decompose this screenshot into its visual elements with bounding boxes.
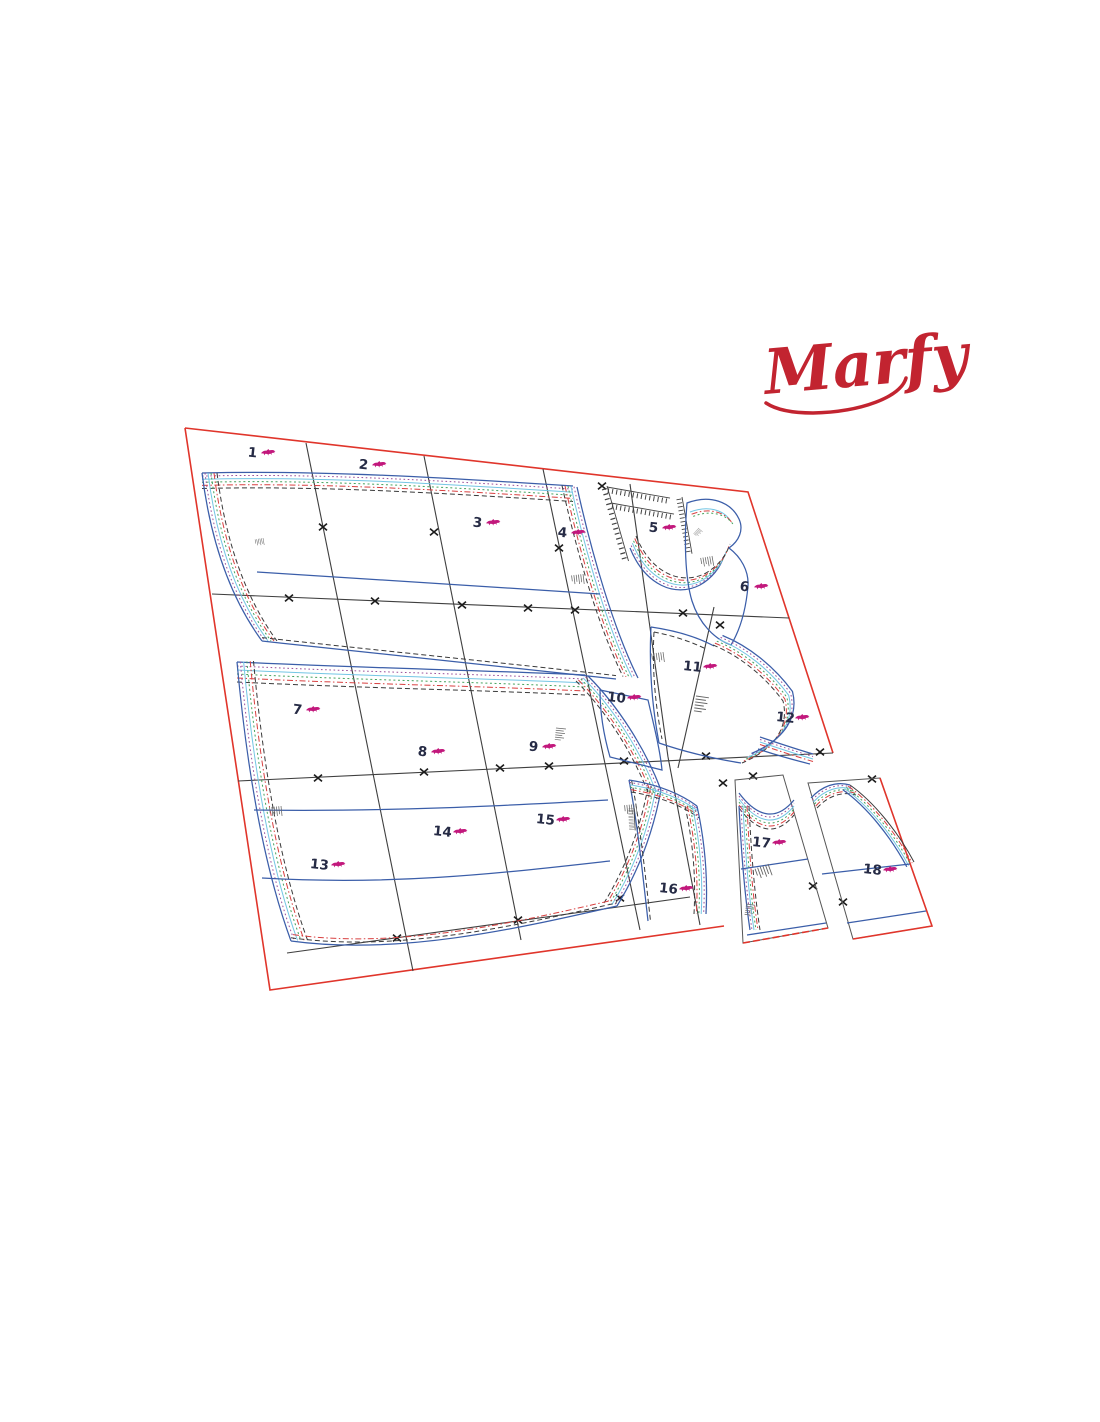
piece-number-10: 10 xyxy=(606,689,626,707)
marfy-logo: Marfy xyxy=(759,318,975,413)
piece-number-17: 17 xyxy=(751,834,771,852)
marfy-horse-icon xyxy=(331,861,345,868)
piece-number-15: 15 xyxy=(535,811,555,829)
instruction-micro-text xyxy=(255,528,772,916)
piece-number-14: 14 xyxy=(432,823,452,841)
marfy-horse-icon xyxy=(372,461,386,468)
marfy-horse-icon xyxy=(679,885,693,892)
pattern-panel-18 xyxy=(808,778,932,939)
piece-number-11: 11 xyxy=(682,658,702,676)
pattern-panel-17 xyxy=(735,775,828,943)
marfy-horse-icon xyxy=(754,583,768,590)
piece-number-5: 5 xyxy=(648,520,659,537)
piece-number-8: 8 xyxy=(417,744,428,761)
piece-number-16: 16 xyxy=(658,880,678,898)
marfy-horse-icon xyxy=(703,663,717,670)
piece-number-6: 6 xyxy=(739,579,750,596)
sheet-border xyxy=(185,428,833,990)
piece-number-2: 2 xyxy=(358,457,369,474)
marfy-horse-icon xyxy=(627,694,641,701)
piece-number-18: 18 xyxy=(862,861,882,879)
pattern-piece-top-band xyxy=(202,472,638,679)
marfy-horse-icon xyxy=(486,519,500,526)
marfy-horse-icon xyxy=(662,524,676,531)
marfy-horse-icon xyxy=(431,748,445,755)
piece-number-12: 12 xyxy=(775,709,795,727)
piece-number-9: 9 xyxy=(528,739,539,756)
piece-number-1: 1 xyxy=(247,445,258,462)
piece-number-3: 3 xyxy=(472,515,483,532)
marfy-horse-icon xyxy=(306,706,320,713)
pattern-piece-12 xyxy=(758,737,813,764)
pattern-product-image: 1 2 3 4 5 6 7 8 9 10 11 12 13 14 15 16 1… xyxy=(0,0,1100,1422)
marfy-horse-icon xyxy=(772,839,786,846)
marfy-horse-icon xyxy=(453,828,467,835)
sewing-pattern-sheet-svg: 1 2 3 4 5 6 7 8 9 10 11 12 13 14 15 16 1… xyxy=(0,0,1100,1422)
marfy-horse-icon xyxy=(542,743,556,750)
marfy-horse-icon xyxy=(261,449,275,456)
pattern-piece-11 xyxy=(650,627,794,763)
marfy-horse-icon xyxy=(795,714,809,721)
piece-number-7: 7 xyxy=(292,702,303,719)
pattern-piece-5-6 xyxy=(604,486,748,645)
marfy-logo-text: Marfy xyxy=(759,318,975,409)
marfy-horse-icon xyxy=(571,529,585,536)
piece-number-13: 13 xyxy=(309,856,329,874)
marfy-horse-icon xyxy=(556,816,570,823)
piece-number-4: 4 xyxy=(557,525,568,542)
piece-number-labels: 1 2 3 4 5 6 7 8 9 10 11 12 13 14 15 16 1… xyxy=(247,445,897,898)
